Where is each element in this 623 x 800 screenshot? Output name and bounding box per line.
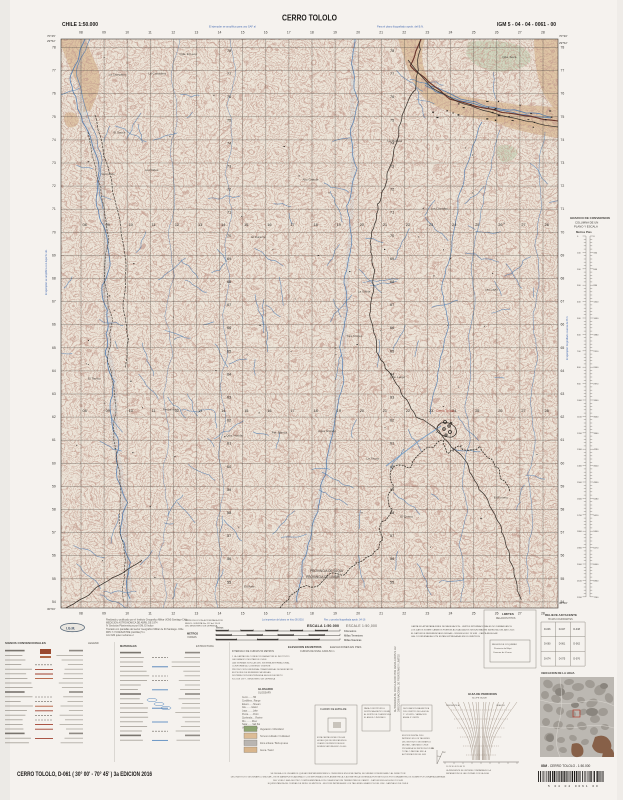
svg-text:20: 20 [356, 612, 360, 616]
svg-text:Cerro Alto: Cerro Alto [102, 172, 116, 176]
svg-text:26: 26 [495, 612, 499, 616]
svg-text:15: 15 [241, 612, 245, 616]
svg-text:73: 73 [561, 161, 565, 165]
svg-text:72: 72 [561, 184, 565, 188]
svg-text:56: 56 [227, 557, 231, 561]
svg-text:D-062: D-062 [573, 643, 580, 646]
svg-text:57: 57 [561, 531, 565, 535]
svg-text:PLANO Y ESCALA: PLANO Y ESCALA [574, 225, 598, 229]
svg-text:Millas Terrestres: Millas Terrestres [344, 634, 364, 638]
svg-text:18: 18 [310, 612, 314, 616]
svg-text:24: 24 [452, 223, 456, 227]
svg-text:73: 73 [52, 161, 56, 165]
svg-text:14: 14 [218, 612, 222, 616]
svg-text:76: 76 [390, 95, 394, 99]
svg-text:LAS COORDENADAS UTM ESTAN EXPR: LAS COORDENADAS UTM ESTAN EXPRESADAS EN … [411, 635, 481, 638]
svg-text:2970: 2970 [594, 384, 600, 386]
svg-text:30°00': 30°00' [47, 607, 56, 611]
svg-text:71: 71 [227, 211, 231, 215]
svg-text:GRADOS: GRADOS [496, 704, 505, 707]
svg-text:Rio..........River: Rio..........River [242, 720, 257, 723]
svg-text:24: 24 [449, 612, 453, 616]
svg-text:Quebrada.....Ravine: Quebrada.....Ravine [242, 716, 263, 719]
svg-text:La impresion del plano se hizo: La impresion del plano se hizo 05-2016 [262, 619, 304, 622]
svg-text:12: 12 [175, 223, 179, 227]
svg-text:7260: 7260 [594, 597, 600, 599]
svg-text:10 20 30 40 50 60 70: 10 20 30 40 50 60 70 [446, 766, 466, 768]
svg-text:17: 17 [290, 223, 294, 227]
svg-text:EDICION DIGITAL 2016: EDICION DIGITAL 2016 [402, 734, 424, 737]
svg-text:D-075: D-075 [559, 657, 566, 660]
svg-text:D-047: D-047 [559, 628, 566, 631]
svg-text:20: 20 [360, 223, 364, 227]
svg-text:HOJAS COLINDANTES: HOJAS COLINDANTES [548, 618, 573, 621]
svg-text:Qda. Larga: Qda. Larga [390, 375, 405, 379]
svg-text:2000: 2000 [577, 564, 583, 566]
svg-text:ELEVACION EN METROS: ELEVACION EN METROS [288, 645, 322, 649]
svg-text:NORTE MAGNETICO SUME: NORTE MAGNETICO SUME [364, 710, 391, 713]
svg-text:CUADRO DE EMPALME: CUADRO DE EMPALME [320, 708, 347, 711]
svg-text:CONFORME AL CONVENIO VIGENTE: CONFORME AL CONVENIO VIGENTE [232, 665, 271, 668]
svg-text:GLOSARIO: GLOSARIO [258, 687, 274, 691]
svg-text:15: 15 [241, 31, 245, 35]
svg-text:66: 66 [52, 323, 56, 327]
svg-text:21: 21 [379, 612, 383, 616]
svg-text:6930: 6930 [594, 580, 600, 582]
svg-text:62: 62 [227, 419, 231, 423]
svg-text:1100: 1100 [577, 416, 582, 418]
svg-text:EQUIDISTANCIA DE CURVAS DE NIV: EQUIDISTANCIA DE CURVAS DE NIVEL 50 METR… [268, 782, 409, 785]
svg-text:2310: 2310 [594, 351, 600, 353]
svg-text:60: 60 [52, 461, 56, 465]
svg-text:69: 69 [227, 257, 231, 261]
svg-text:ANUAL 8' OESTE: ANUAL 8' OESTE [403, 716, 420, 719]
svg-text:GEOGRAFICO MILITAR DE CHILE: GEOGRAFICO MILITAR DE CHILE [232, 658, 267, 661]
svg-text:I.G.M.: I.G.M. [66, 627, 75, 631]
svg-text:5940: 5940 [594, 531, 600, 533]
svg-text:61: 61 [227, 442, 231, 446]
svg-text:27: 27 [521, 223, 525, 227]
svg-text:60: 60 [227, 465, 231, 469]
svg-text:27: 27 [521, 409, 525, 413]
svg-text:1600: 1600 [577, 498, 583, 500]
svg-text:09: 09 [102, 31, 106, 35]
svg-text:70: 70 [227, 234, 231, 238]
svg-text:75: 75 [390, 118, 394, 122]
svg-text:56: 56 [561, 554, 565, 558]
svg-text:IGM - CERRO TOLOLO - 1:50.000: IGM - CERRO TOLOLO - 1:50.000 [541, 764, 591, 768]
svg-text:24: 24 [449, 31, 453, 35]
svg-text:55: 55 [227, 580, 231, 584]
svg-text:Kilometros: Kilometros [344, 629, 357, 633]
svg-text:64: 64 [227, 372, 231, 376]
svg-text:1980: 1980 [594, 334, 600, 336]
svg-text:1 LA CARTA FUE CONFECCIONADA P: 1 LA CARTA FUE CONFECCIONADA POR EL INST… [232, 655, 290, 658]
svg-text:72: 72 [52, 184, 56, 188]
svg-text:Terreno cultivado / Cultivated: Terreno cultivado / Cultivated [260, 735, 290, 738]
svg-text:23: 23 [429, 223, 433, 227]
svg-text:Los Nidos: Los Nidos [145, 168, 159, 172]
svg-text:21: 21 [383, 409, 387, 413]
svg-text:MILITAR - SANTIAGO CHILE: MILITAR - SANTIAGO CHILE [402, 744, 429, 747]
svg-text:19: 19 [337, 409, 341, 413]
svg-text:REGION DE COQUIMBO: REGION DE COQUIMBO [492, 644, 517, 646]
svg-text:15: 15 [244, 409, 248, 413]
svg-text:13: 13 [198, 223, 202, 227]
svg-text:La Totora: La Totora [366, 457, 379, 461]
svg-text:62: 62 [390, 419, 394, 423]
svg-text:HOJAS QUE SE INDICAN EN EL: HOJAS QUE SE INDICAN EN EL [317, 739, 348, 742]
svg-text:63: 63 [561, 392, 565, 396]
svg-text:LOS DATOS SOBRE CAMINOS FUERON: LOS DATOS SOBRE CAMINOS FUERON ACTUALIZA… [411, 628, 515, 631]
svg-text:54: 54 [52, 600, 56, 604]
svg-text:1700: 1700 [577, 515, 583, 517]
svg-text:D-061: D-061 [559, 643, 566, 646]
svg-text:16: 16 [264, 31, 268, 35]
svg-text:1800: 1800 [577, 531, 583, 533]
svg-text:55: 55 [390, 580, 394, 584]
svg-text:60: 60 [390, 465, 394, 469]
svg-text:14: 14 [221, 409, 225, 413]
svg-text:RELACION HITOS: RELACION HITOS [496, 617, 516, 620]
svg-text:IGM 5 - 04 - 04 - 0061 - 00: IGM 5 - 04 - 04 - 0061 - 00 [497, 22, 556, 28]
svg-text:10: 10 [125, 31, 129, 35]
svg-text:63: 63 [52, 392, 56, 396]
svg-text:3300: 3300 [594, 400, 600, 402]
svg-text:Millas Nauticas: Millas Nauticas [344, 638, 362, 642]
svg-text:ESCALA 1:50.000: ESCALA 1:50.000 [307, 624, 339, 628]
svg-text:4290: 4290 [594, 449, 600, 451]
svg-text:64: 64 [52, 369, 56, 373]
svg-text:Pta. Blanca: Pta. Blanca [272, 430, 288, 434]
svg-text:22: 22 [406, 409, 410, 413]
svg-text:28: 28 [541, 31, 545, 35]
svg-text:19: 19 [333, 31, 337, 35]
svg-text:64: 64 [561, 369, 565, 373]
svg-text:57: 57 [227, 534, 231, 538]
svg-text:Agua Grande: Agua Grande [318, 429, 336, 433]
svg-text:11: 11 [152, 409, 156, 413]
svg-text:SEPARACION DE LAS CURVAS CON L: SEPARACION DE LAS CURVAS CON LA GUIA [446, 772, 489, 775]
svg-text:DEL INSTITUTO GEOGRAFICO MILIT: DEL INSTITUTO GEOGRAFICO MILITAR - ESTE … [231, 775, 446, 778]
svg-text:DEL MINISTERIO DE DEFENSA: DEL MINISTERIO DE DEFENSA [185, 625, 218, 628]
svg-text:UBICACION DE LA HOJA: UBICACION DE LA HOJA [541, 671, 574, 675]
svg-text:74: 74 [561, 138, 565, 142]
svg-text:62: 62 [561, 415, 565, 419]
svg-text:Qda. Honda: Qda. Honda [226, 434, 243, 438]
svg-text:Las Lajas: Las Lajas [485, 288, 498, 292]
svg-text:65: 65 [561, 346, 565, 350]
svg-text:29°52': 29°52' [559, 41, 568, 45]
svg-text:78: 78 [561, 46, 565, 50]
svg-text:Isla.........Island: Isla.........Island [242, 707, 258, 709]
svg-text:5 04 04 0061 00: 5 04 04 0061 00 [548, 784, 600, 788]
svg-text:PROYECCION UNIVERSAL TRANSVERS: PROYECCION UNIVERSAL TRANSVERSAL DE MERC… [232, 668, 293, 671]
svg-text:19: 19 [337, 223, 341, 227]
svg-text:65: 65 [52, 346, 56, 350]
svg-text:2100: 2100 [577, 580, 583, 582]
svg-text:61: 61 [561, 438, 565, 442]
svg-text:77: 77 [52, 69, 56, 73]
svg-text:21: 21 [379, 31, 383, 35]
svg-text:CURVAS DE NIVEL CADA 50 m: CURVAS DE NIVEL CADA 50 m [300, 650, 334, 653]
svg-text:74: 74 [52, 138, 56, 142]
svg-text:72: 72 [390, 188, 394, 192]
svg-text:57: 57 [52, 531, 56, 535]
svg-text:IMPRESO EN LOS TALLERES: IMPRESO EN LOS TALLERES [402, 737, 430, 740]
svg-text:09: 09 [106, 223, 110, 227]
svg-text:RESOL. EXENTA Nro 112 del 13-0: RESOL. EXENTA Nro 112 del 13-05 [185, 622, 221, 625]
svg-text:D-048: D-048 [573, 628, 580, 631]
svg-text:14: 14 [221, 223, 225, 227]
svg-text:30°00': 30°00' [559, 601, 568, 605]
svg-text:69: 69 [561, 253, 565, 257]
svg-text:70°45': 70°45' [47, 34, 56, 38]
svg-text:5610: 5610 [594, 515, 600, 517]
svg-text:75: 75 [52, 115, 56, 119]
svg-text:18: 18 [310, 31, 314, 35]
svg-text:mm IGM quien reclama el: mm IGM quien reclama el [106, 634, 134, 637]
svg-text:57: 57 [390, 534, 394, 538]
svg-text:NOMENCLATURA IGM 1:50.000: NOMENCLATURA IGM 1:50.000 [317, 745, 347, 748]
svg-text:73: 73 [227, 165, 231, 169]
svg-text:09: 09 [106, 409, 110, 413]
svg-text:Lago.........Lake: Lago.........Lake [242, 711, 259, 713]
svg-text:61: 61 [52, 438, 56, 442]
svg-text:Los Corrales: Los Corrales [431, 207, 449, 211]
svg-text:66: 66 [227, 326, 231, 330]
svg-text:15: 15 [244, 223, 248, 227]
svg-text:AUTORIZACION DEL IGM: AUTORIZACION DEL IGM [402, 753, 426, 756]
svg-text:Alto Grande: Alto Grande [303, 177, 319, 181]
svg-text:D-076: D-076 [573, 657, 580, 660]
svg-text:66: 66 [561, 323, 565, 327]
svg-text:17: 17 [290, 409, 294, 413]
svg-text:27: 27 [518, 31, 522, 35]
svg-text:RELIEVE ADYACENTE: RELIEVE ADYACENTE [545, 613, 577, 617]
svg-text:ESCALE 1:50,000: ESCALE 1:50,000 [346, 624, 377, 628]
svg-text:65: 65 [227, 349, 231, 353]
svg-text:68: 68 [227, 280, 231, 284]
svg-text:CERRO TOLOLO: CERRO TOLOLO [282, 14, 338, 23]
svg-text:63: 63 [390, 396, 394, 400]
svg-text:5280: 5280 [594, 498, 600, 500]
svg-text:25: 25 [475, 409, 479, 413]
svg-text:AL NORTE DE CUADRICULA: AL NORTE DE CUADRICULA [364, 713, 391, 716]
svg-text:16: 16 [267, 409, 271, 413]
svg-text:13: 13 [195, 31, 199, 35]
svg-text:El ejemplar litografiado cuent: El ejemplar litografiado cuenta de B.N. [565, 315, 569, 360]
svg-text:El Quisco: El Quisco [400, 515, 413, 519]
svg-text:10: 10 [129, 223, 133, 227]
svg-text:GUIA DE PERIODOS: GUIA DE PERIODOS [468, 692, 497, 696]
svg-text:LAS NORMAS SON LAS DEL SISTEMA: LAS NORMAS SON LAS DEL SISTEMA INTERNACI… [232, 661, 290, 664]
svg-text:70°30': 70°30' [559, 34, 568, 38]
svg-text:Piedra Azul: Piedra Azul [163, 407, 179, 411]
svg-text:67: 67 [561, 300, 565, 304]
svg-text:22: 22 [402, 612, 406, 616]
svg-text:55: 55 [52, 577, 56, 581]
svg-text:El Sauce: El Sauce [114, 131, 126, 135]
svg-text:68: 68 [52, 277, 56, 281]
svg-text:Zona urbana / Built-up area: Zona urbana / Built-up area [260, 742, 289, 745]
svg-text:Comuna de Vicuna: Comuna de Vicuna [493, 652, 512, 654]
svg-text:23: 23 [426, 612, 430, 616]
svg-text:12: 12 [171, 612, 175, 616]
svg-text:El Durazno: El Durazno [251, 235, 266, 239]
svg-text:La Mollaca: La Mollaca [388, 139, 403, 143]
svg-text:59: 59 [561, 484, 565, 488]
svg-text:67: 67 [52, 300, 56, 304]
svg-text:Qda. Seca: Qda. Seca [502, 55, 517, 59]
svg-text:Salar........Salt flat: Salar........Salt flat [242, 723, 260, 726]
svg-text:78: 78 [52, 46, 56, 50]
svg-text:2640: 2640 [594, 367, 600, 369]
svg-text:29°52': 29°52' [47, 39, 56, 43]
svg-text:PROVINCIA DE LIMARI: PROVINCIA DE LIMARI [306, 575, 340, 579]
svg-text:11: 11 [148, 31, 152, 35]
svg-text:METROS: METROS [187, 632, 198, 636]
svg-text:11: 11 [152, 223, 156, 227]
svg-text:77: 77 [227, 72, 231, 76]
svg-text:11: 11 [148, 612, 152, 616]
svg-text:PROVINCIA DE ELQUI: PROVINCIA DE ELQUI [310, 569, 343, 573]
svg-text:Estero.......Stream: Estero.......Stream [242, 703, 261, 706]
svg-text:56: 56 [390, 557, 394, 561]
svg-text:26: 26 [498, 223, 502, 227]
svg-text:23: 23 [429, 409, 433, 413]
svg-text:76: 76 [52, 92, 56, 96]
svg-text:17: 17 [287, 31, 291, 35]
svg-text:GRAFICO DE CONVERSION: GRAFICO DE CONVERSION [570, 216, 610, 220]
svg-text:1500: 1500 [577, 482, 583, 484]
svg-text:70: 70 [561, 230, 565, 234]
svg-text:68: 68 [561, 277, 565, 281]
svg-text:PROHIBIDA SU REPRODUCCION: PROHIBIDA SU REPRODUCCION [402, 747, 434, 750]
svg-text:58: 58 [561, 508, 565, 512]
svg-text:Qda. El Leon: Qda. El Leon [180, 52, 198, 56]
svg-text:DECLINACION MAGNETICA: DECLINACION MAGNETICA [403, 707, 430, 710]
svg-text:INTERVALO DE CURVAS 50 METROS: INTERVALO DE CURVAS 50 METROS [232, 650, 274, 653]
svg-text:21: 21 [383, 223, 387, 227]
svg-text:Cordillera...Range: Cordillera...Range [242, 699, 261, 702]
svg-text:PARA CONSTITUIR EL: PARA CONSTITUIR EL [364, 707, 386, 710]
svg-text:Rev. y prueba litografiada apr: Rev. y prueba litografiada aprob. 04-16 [324, 619, 366, 622]
svg-text:08: 08 [79, 612, 83, 616]
svg-text:El ejemplar se amplifica para: El ejemplar se amplifica para uso SAF al [209, 25, 256, 29]
svg-text:25: 25 [472, 612, 476, 616]
svg-text:La Cortadera: La Cortadera [148, 72, 166, 76]
svg-text:55: 55 [561, 577, 565, 581]
svg-text:Tres Cruces: Tres Cruces [346, 334, 363, 338]
svg-text:4950: 4950 [594, 482, 600, 484]
svg-text:D-046: D-046 [544, 628, 551, 631]
svg-text:25: 25 [475, 223, 479, 227]
svg-text:EL DATUM DE REFERENCIA ES SIRG: EL DATUM DE REFERENCIA ES SIRGAS - WGS84… [411, 632, 498, 635]
svg-text:58: 58 [52, 508, 56, 512]
svg-text:19: 19 [333, 612, 337, 616]
svg-text:76: 76 [227, 95, 231, 99]
svg-text:28: 28 [545, 223, 549, 227]
svg-text:Para el plano litografiado apr: Para el plano litografiado aprob. del B.… [377, 25, 424, 29]
svg-text:4620: 4620 [594, 466, 600, 468]
svg-text:3630: 3630 [594, 416, 600, 418]
svg-text:SE DEJA A LOS USUARIOS QUE ADV: SE DEJA A LOS USUARIOS QUE ADVIERTAN ERR… [271, 772, 406, 775]
svg-text:66: 66 [390, 326, 394, 330]
svg-text:62: 62 [52, 415, 56, 419]
svg-text:08: 08 [83, 409, 87, 413]
svg-text:09: 09 [102, 612, 106, 616]
svg-text:6270: 6270 [594, 548, 600, 550]
svg-text:13: 13 [195, 612, 199, 616]
svg-text:El Tambo: El Tambo [88, 376, 101, 380]
svg-text:Metros Pies: Metros Pies [576, 230, 592, 234]
svg-text:CARTA NO APTA PARA FINES DE NA: CARTA NO APTA PARA FINES DE NAVEGACION -… [411, 625, 512, 628]
svg-text:70: 70 [52, 230, 56, 234]
svg-text:61: 61 [390, 442, 394, 446]
svg-text:1900: 1900 [577, 548, 583, 550]
svg-text:26: 26 [498, 409, 502, 413]
svg-text:3960: 3960 [594, 433, 600, 435]
svg-text:75: 75 [227, 118, 231, 122]
svg-text:77: 77 [390, 72, 394, 76]
svg-text:1300: 1300 [577, 449, 583, 451]
svg-text:CERRO TOLOLO, D-061 ( 30° 00': CERRO TOLOLO, D-061 ( 30° 00' - 70° 45' … [17, 770, 152, 778]
svg-text:25: 25 [472, 31, 476, 35]
svg-text:DIRECCION NACIONAL DE FRONTERA: DIRECCION NACIONAL DE FRONTERAS Y LIMITE… [398, 654, 401, 712]
svg-text:08: 08 [83, 223, 87, 227]
svg-text:08: 08 [79, 31, 83, 35]
svg-text:1200: 1200 [577, 433, 583, 435]
svg-text:27: 27 [518, 612, 522, 616]
svg-text:77: 77 [561, 69, 565, 73]
svg-text:72: 72 [227, 188, 231, 192]
svg-text:2° 14' ESTE - VARIACION: 2° 14' ESTE - VARIACION [403, 713, 427, 716]
svg-text:18: 18 [314, 409, 318, 413]
svg-text:56: 56 [52, 554, 56, 558]
svg-text:20: 20 [360, 409, 364, 413]
svg-text:69: 69 [390, 257, 394, 261]
svg-text:GLOSSARY: GLOSSARY [258, 692, 272, 695]
svg-text:ELEVACIONES EN PIES: ELEVACIONES EN PIES [330, 645, 361, 649]
svg-text:71: 71 [561, 207, 565, 211]
svg-text:El Romero: El Romero [494, 496, 509, 500]
svg-text:1320: 1320 [594, 302, 600, 304]
svg-text:67: 67 [227, 303, 231, 307]
svg-text:69: 69 [52, 253, 56, 257]
svg-text:DEL INSTITUTO GEOGRAFICO: DEL INSTITUTO GEOGRAFICO [402, 740, 431, 743]
svg-text:PENDIENTE A: PENDIENTE A [446, 704, 460, 707]
svg-text:22: 22 [402, 31, 406, 35]
svg-text:28: 28 [545, 409, 549, 413]
svg-text:13: 13 [198, 409, 202, 413]
svg-text:70: 70 [390, 234, 394, 238]
svg-text:59: 59 [227, 488, 231, 492]
svg-text:ESTRUCTURA: ESTRUCTURA [196, 644, 214, 648]
svg-text:12: 12 [171, 31, 175, 35]
svg-text:1650: 1650 [594, 318, 600, 320]
svg-text:LEGEND: LEGEND [88, 641, 99, 645]
svg-text:LA PENDIENTE SE OBTIENE COMPAR: LA PENDIENTE SE OBTIENE COMPARANDO LA [446, 769, 492, 772]
svg-text:10: 10 [125, 612, 129, 616]
svg-text:EL ANGULO INDICADO: EL ANGULO INDICADO [364, 716, 386, 719]
svg-text:23: 23 [426, 31, 430, 35]
svg-text:68: 68 [390, 280, 394, 284]
svg-text:El ejemplar se amplifica con l: El ejemplar se amplifica con lupa 5x ob. [44, 249, 48, 295]
svg-text:La Silleta: La Silleta [358, 290, 371, 294]
svg-text:LIMITES: LIMITES [502, 612, 514, 616]
svg-text:Vegetacion / Woodland: Vegetacion / Woodland [260, 728, 284, 731]
